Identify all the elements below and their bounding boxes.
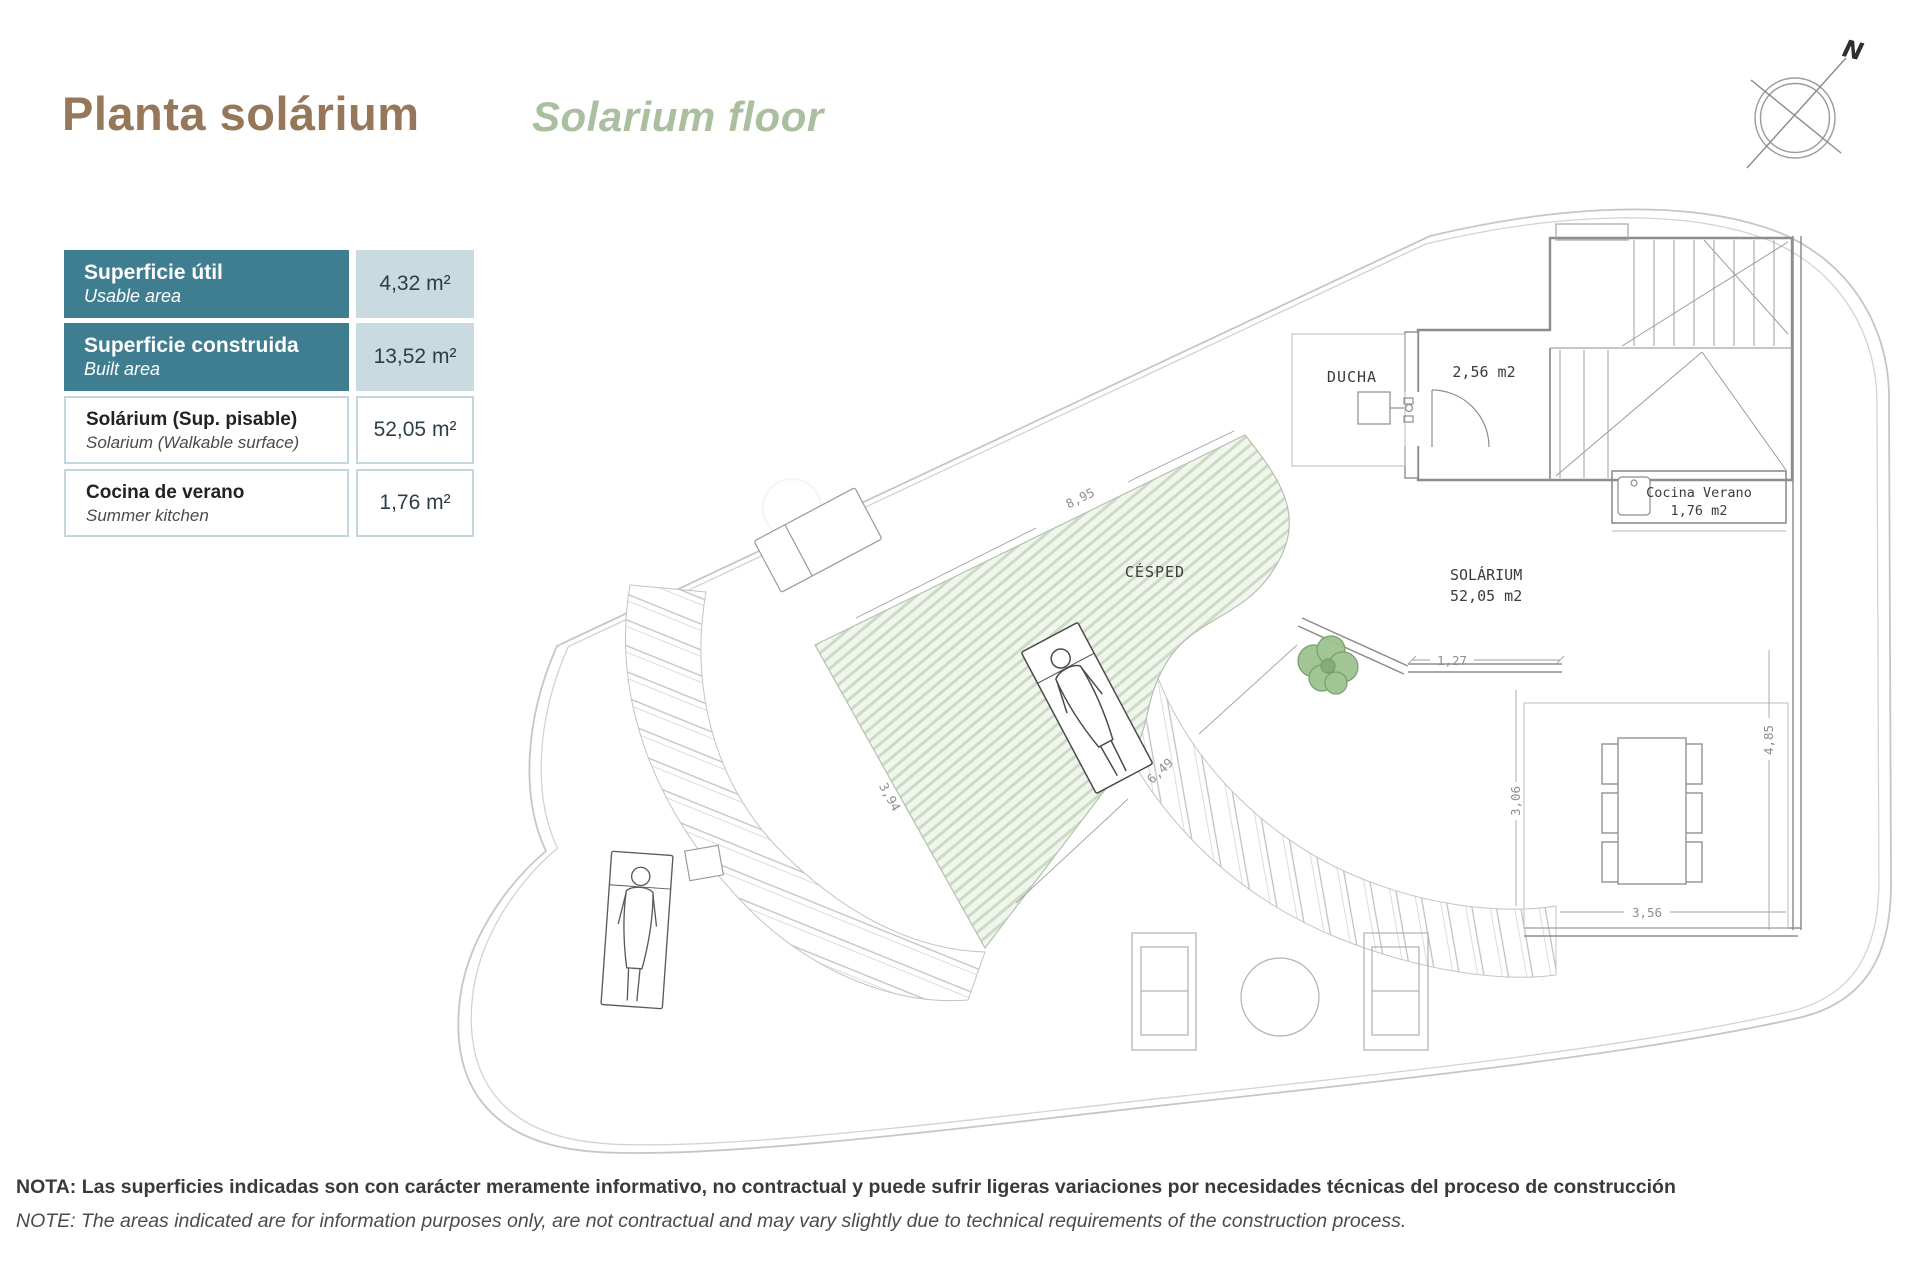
stairs-lower: [1550, 348, 1786, 480]
side-table: [685, 845, 724, 880]
floor-plan: N DUCHA 2,56 m2 Cocina Verano 1,76 m2 SO…: [0, 0, 1920, 1280]
row-label-cell: Superficie útil Usable area: [64, 250, 349, 318]
label-es: Superficie construida: [84, 332, 349, 359]
footer-note-en: NOTE: The areas indicated are for inform…: [16, 1210, 1406, 1233]
row-label-cell: Superficie construida Built area: [64, 323, 349, 391]
label-en: Usable area: [84, 286, 349, 308]
compass-north-label: N: [1840, 34, 1866, 66]
label-es: Solárium (Sup. pisable): [86, 408, 347, 433]
round-table: [1241, 958, 1319, 1036]
label-en: Solarium (Walkable surface): [86, 433, 347, 453]
cocina-label-1: Cocina Verano: [1646, 485, 1752, 501]
page-title: Planta solárium: [62, 86, 420, 141]
cocina-label-2: 1,76 m2: [1671, 503, 1728, 519]
louver-band-bottom: [1093, 655, 1556, 977]
interior-walls: [1298, 236, 1801, 936]
table-row: Cocina de verano Summer kitchen 1,76 m²: [64, 469, 474, 537]
chair: [1602, 793, 1620, 833]
row-value-cell: 13,52 m²: [356, 323, 474, 391]
label-en: Built area: [84, 359, 349, 381]
person-head: [631, 867, 650, 886]
dim-terrace-bottom: 3,56: [1632, 905, 1662, 920]
table-row: Solárium (Sup. pisable) Solarium (Walkab…: [64, 396, 474, 464]
stairs-upper: [1622, 240, 1788, 346]
table-row: Superficie construida Built area 13,52 m…: [64, 323, 474, 391]
chair: [1602, 744, 1620, 784]
label-es: Superficie útil: [84, 259, 349, 286]
footer-note-es: NOTA: Las superficies indicadas son con …: [16, 1176, 1676, 1199]
cesped-label: CÉSPED: [1125, 562, 1185, 581]
page-subtitle: Solarium floor: [532, 93, 824, 141]
solarium-label-1: SOLÁRIUM: [1450, 565, 1522, 584]
dim-terrace-mid: 3,06: [1508, 786, 1523, 816]
chair: [1602, 842, 1620, 882]
row-value-cell: 52,05 m²: [356, 396, 474, 464]
building-block: [1402, 224, 1792, 480]
dim-terrace-top: 1,27: [1437, 653, 1467, 668]
dining-table: [1602, 738, 1702, 884]
dim-terrace-right: 4,85: [1761, 725, 1776, 755]
dim-grass-top: 8,95: [1063, 485, 1097, 512]
ducha-zone: [1292, 334, 1413, 466]
row-label-cell: Solárium (Sup. pisable) Solarium (Walkab…: [64, 396, 349, 464]
row-label-cell: Cocina de verano Summer kitchen: [64, 469, 349, 537]
tree-icon: [1298, 636, 1358, 694]
label-en: Summer kitchen: [86, 506, 347, 526]
row-value-cell: 4,32 m²: [356, 250, 474, 318]
chair: [1684, 842, 1702, 882]
label-es: Cocina de verano: [86, 481, 347, 506]
solarium-label-2: 52,05 m2: [1450, 587, 1522, 605]
ducha-label: DUCHA: [1327, 368, 1377, 386]
chair: [1684, 744, 1702, 784]
chair: [1684, 793, 1702, 833]
row-value-cell: 1,76 m²: [356, 469, 474, 537]
door: [1402, 390, 1489, 447]
areas-table: Superficie útil Usable area 4,32 m² Supe…: [64, 250, 474, 537]
table-top: [1618, 738, 1686, 884]
table-row: Superficie útil Usable area 4,32 m²: [64, 250, 474, 318]
room-area-label: 2,56 m2: [1452, 363, 1515, 381]
compass-icon: N: [1747, 34, 1866, 168]
sunbather-left: [601, 851, 673, 1009]
